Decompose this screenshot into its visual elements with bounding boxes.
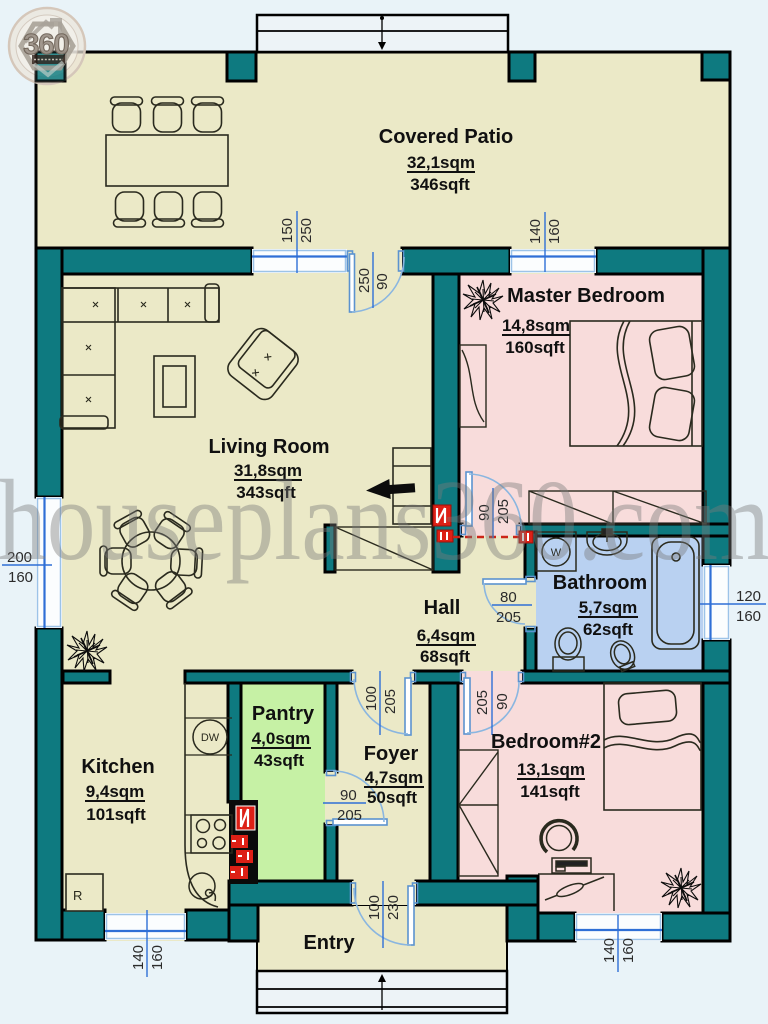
svg-text:160: 160 — [546, 219, 563, 244]
svg-text:80: 80 — [500, 589, 517, 606]
svg-text:120: 120 — [736, 588, 761, 605]
svg-text:6,4sqm: 6,4sqm — [417, 626, 476, 645]
svg-text:68sqft: 68sqft — [420, 647, 470, 666]
svg-text:205: 205 — [337, 807, 362, 824]
svg-text:101sqft: 101sqft — [86, 805, 146, 824]
svg-text:250: 250 — [298, 218, 315, 243]
svg-text:43sqft: 43sqft — [254, 751, 304, 770]
svg-text:160: 160 — [149, 945, 166, 970]
svg-text:50sqft: 50sqft — [367, 788, 417, 807]
svg-text:Kitchen: Kitchen — [81, 756, 154, 778]
svg-text:230: 230 — [385, 895, 402, 920]
svg-text:DW: DW — [201, 732, 220, 744]
svg-text:346sqft: 346sqft — [410, 175, 470, 194]
svg-text:houseplans360.com: houseplans360.com — [0, 457, 768, 584]
svg-text:205: 205 — [496, 609, 521, 626]
svg-text:4,0sqm: 4,0sqm — [252, 729, 311, 748]
svg-text:160: 160 — [620, 938, 637, 963]
svg-text:5,7sqm: 5,7sqm — [579, 598, 638, 617]
svg-text:Master Bedroom: Master Bedroom — [507, 285, 665, 307]
svg-text:205: 205 — [382, 689, 399, 714]
svg-text:160: 160 — [736, 608, 761, 625]
svg-text:100: 100 — [366, 895, 383, 920]
svg-text:150: 150 — [279, 218, 296, 243]
svg-text:90: 90 — [374, 273, 391, 290]
svg-text:4,7sqm: 4,7sqm — [365, 768, 424, 787]
svg-text:100: 100 — [363, 686, 380, 711]
svg-text:205: 205 — [474, 690, 491, 715]
svg-text:141sqft: 141sqft — [520, 782, 580, 801]
svg-text:13,1sqm: 13,1sqm — [517, 760, 585, 779]
svg-text:9,4sqm: 9,4sqm — [86, 782, 145, 801]
svg-text:Living Room: Living Room — [208, 436, 329, 458]
svg-text:140: 140 — [130, 945, 147, 970]
svg-text:Hall: Hall — [424, 597, 461, 619]
svg-text:Bedroom#2: Bedroom#2 — [491, 731, 601, 753]
svg-text:14,8sqm: 14,8sqm — [502, 316, 570, 335]
svg-text:Covered Patio: Covered Patio — [379, 126, 513, 148]
svg-text:Entry: Entry — [303, 932, 355, 954]
svg-text:250: 250 — [356, 268, 373, 293]
svg-text:160sqft: 160sqft — [505, 338, 565, 357]
svg-text:62sqft: 62sqft — [583, 620, 633, 639]
svg-text:Pantry: Pantry — [252, 703, 315, 725]
svg-text:90: 90 — [494, 693, 511, 710]
svg-text:90: 90 — [340, 787, 357, 804]
svg-text:140: 140 — [527, 219, 544, 244]
svg-text:140: 140 — [601, 938, 618, 963]
svg-text:Foyer: Foyer — [364, 743, 419, 765]
svg-text:R: R — [73, 888, 82, 903]
svg-text:32,1sqm: 32,1sqm — [407, 153, 475, 172]
